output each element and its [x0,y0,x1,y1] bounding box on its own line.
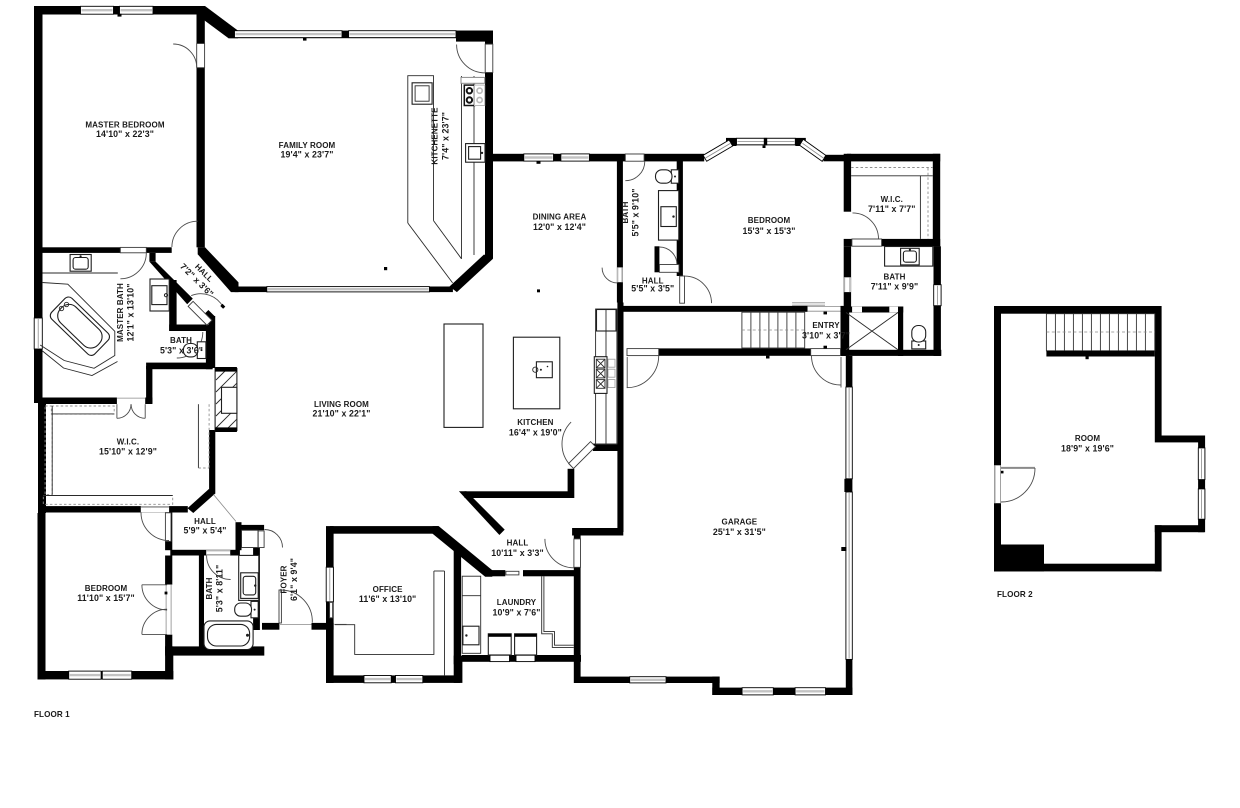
svg-text:19'4" x 23'7": 19'4" x 23'7" [281,150,334,160]
svg-text:10'11" x 3'3": 10'11" x 3'3" [491,548,543,558]
svg-text:15'10" x 12'9": 15'10" x 12'9" [99,447,157,457]
svg-text:BATH: BATH [883,273,905,282]
svg-text:BATH: BATH [205,577,214,599]
svg-text:12'1" x 13'10": 12'1" x 13'10" [126,284,136,342]
svg-text:DINING AREA: DINING AREA [533,213,587,222]
svg-text:GARAGE: GARAGE [722,518,758,527]
svg-text:11'6" x 13'10": 11'6" x 13'10" [359,594,416,604]
svg-text:7'11" x 7'7": 7'11" x 7'7" [868,204,915,214]
svg-text:KITCHEN: KITCHEN [517,418,553,427]
svg-text:16'4" x 19'0": 16'4" x 19'0" [509,428,562,438]
svg-text:FLOOR 1: FLOOR 1 [34,710,70,719]
svg-text:MASTER BATH: MASTER BATH [116,283,125,342]
svg-text:15'3" x 15'3": 15'3" x 15'3" [743,226,796,236]
svg-text:BEDROOM: BEDROOM [748,216,791,225]
svg-text:ENTRY: ENTRY [812,321,840,330]
svg-text:14'10" x 22'3": 14'10" x 22'3" [96,129,154,139]
svg-text:6'1" x 9'4": 6'1" x 9'4" [289,558,299,601]
svg-text:25'1" x 31'5": 25'1" x 31'5" [713,527,766,537]
svg-text:HALL: HALL [507,539,529,548]
svg-text:ROOM: ROOM [1075,434,1101,443]
svg-text:5'3" x 3'6": 5'3" x 3'6" [160,346,203,356]
svg-text:W.I.C.: W.I.C. [881,195,903,204]
svg-text:10'9" x 7'6": 10'9" x 7'6" [493,608,541,618]
svg-text:W.I.C.: W.I.C. [117,438,139,447]
svg-text:12'0" x 12'4": 12'0" x 12'4" [533,222,586,232]
svg-text:7'4" x 23'7": 7'4" x 23'7" [441,112,451,160]
svg-text:5'9" x 5'4": 5'9" x 5'4" [184,526,227,536]
svg-text:OFFICE: OFFICE [373,585,403,594]
svg-text:KITCHENETTE: KITCHENETTE [431,107,440,165]
svg-text:LAUNDRY: LAUNDRY [497,598,537,607]
svg-text:7'11" x 9'9": 7'11" x 9'9" [871,282,918,292]
svg-text:FLOOR 2: FLOOR 2 [997,590,1033,599]
svg-text:5'5" x 3'5": 5'5" x 3'5" [631,284,674,294]
svg-text:BEDROOM: BEDROOM [85,584,128,593]
svg-text:BATH: BATH [170,336,192,345]
svg-text:18'9" x 19'6": 18'9" x 19'6" [1061,444,1114,454]
svg-text:5'3" x 8'11": 5'3" x 8'11" [215,565,225,612]
svg-text:21'10" x 22'1": 21'10" x 22'1" [313,409,371,419]
svg-text:BATH: BATH [621,201,630,223]
svg-text:FOYER: FOYER [280,565,289,593]
svg-text:5'5" x 9'10": 5'5" x 9'10" [631,189,641,237]
svg-text:11'10" x 15'7": 11'10" x 15'7" [77,593,134,603]
svg-text:3'10" x 3'7": 3'10" x 3'7" [802,331,850,341]
